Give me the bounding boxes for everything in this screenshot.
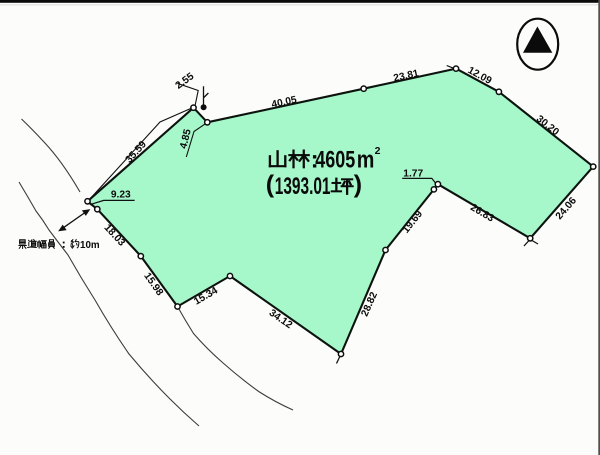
svg-text:): ) [354, 171, 362, 199]
svg-text:2: 2 [375, 145, 381, 157]
svg-text:1393.01: 1393.01 [275, 173, 331, 200]
svg-text:4605: 4605 [315, 147, 355, 174]
svg-text:10m: 10m [80, 240, 100, 251]
svg-text:(: ( [266, 171, 275, 199]
svg-text:9.23: 9.23 [111, 189, 131, 200]
svg-text:1.77: 1.77 [403, 169, 423, 180]
